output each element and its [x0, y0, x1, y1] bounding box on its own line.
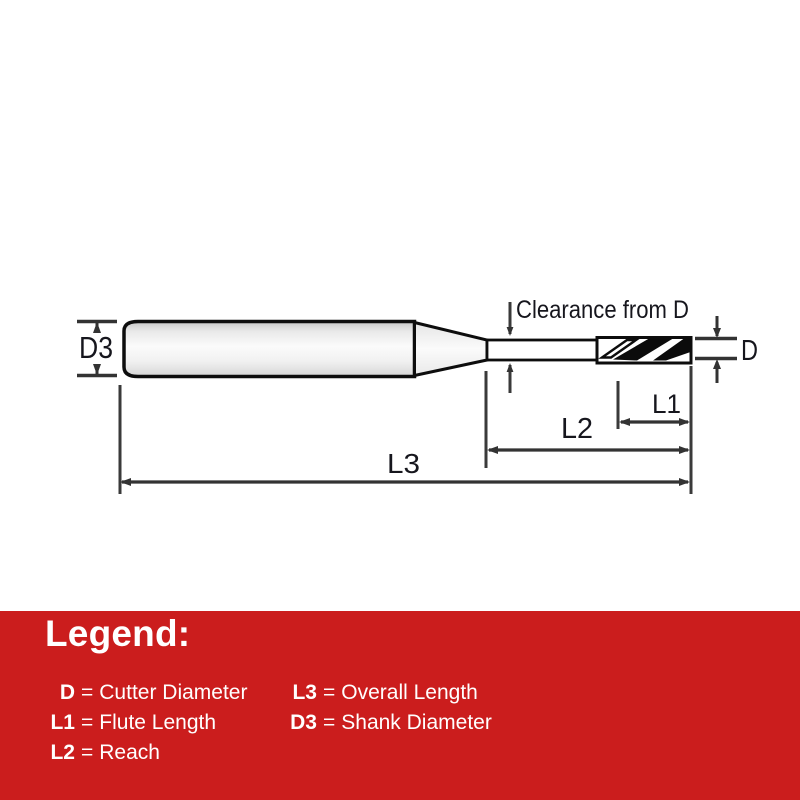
shank-shape [124, 322, 415, 377]
legend-term: D [46, 680, 75, 706]
legend-term: L3 [288, 680, 317, 706]
overall-arrow-left [120, 478, 131, 486]
legend-term: L2 [46, 740, 75, 766]
flute-length-arrow-left [619, 418, 630, 426]
legend-term: L1 [46, 710, 75, 736]
legend-equals: = [323, 681, 335, 704]
legend-definition: Reach [99, 741, 160, 764]
legend-panel: Legend: D=Cutter Diameter L1=Flute Lengt… [0, 611, 800, 800]
legend-equals: = [81, 741, 93, 764]
cutter-dia-arrow-up [713, 359, 721, 369]
clearance-arrow-down [507, 327, 514, 336]
legend-entry-reach: L2=Reach [46, 740, 288, 770]
cutter-dia-arrow-down [713, 328, 721, 338]
legend-definition: Flute Length [99, 711, 216, 734]
legend-equals: = [323, 711, 335, 734]
overall-length-label: L3 [387, 448, 420, 479]
neck-shape [487, 340, 599, 360]
flute-length-arrow-right [679, 418, 690, 426]
reach-arrow-left [487, 446, 498, 454]
legend-definition: Shank Diameter [341, 711, 492, 734]
legend-entry-shank-diameter: D3=Shank Diameter [288, 710, 492, 740]
flute-length-label: L1 [652, 389, 681, 419]
shank-diameter-label: D3 [79, 330, 113, 365]
shank-dia-arrow-down [93, 364, 101, 375]
legend-definition: Cutter Diameter [99, 681, 247, 704]
legend-equals: = [81, 711, 93, 734]
legend-equals: = [81, 681, 93, 704]
cutter-diameter-label: D [741, 335, 758, 367]
overall-arrow-right [679, 478, 690, 486]
end-mill-dimension-figure: D3 D L1 L2 L3 Clearance from D Legend: D… [0, 0, 800, 800]
legend-entry-overall-length: L3=Overall Length [288, 680, 492, 710]
legend-entries: D=Cutter Diameter L1=Flute Length L2=Rea… [46, 680, 492, 770]
reach-label: L2 [561, 413, 593, 445]
legend-title: Legend: [45, 613, 190, 655]
clearance-arrow-up [507, 363, 514, 372]
legend-entry-cutter-diameter: D=Cutter Diameter [46, 680, 288, 710]
end-mill-diagram: D3 D L1 L2 L3 Clearance from D [0, 0, 800, 611]
legend-term: D3 [288, 710, 317, 736]
taper-shape [415, 323, 488, 376]
legend-entry-flute-length: L1=Flute Length [46, 710, 288, 740]
clearance-note-label: Clearance from D [516, 296, 689, 324]
reach-arrow-right [679, 446, 690, 454]
legend-definition: Overall Length [341, 681, 478, 704]
